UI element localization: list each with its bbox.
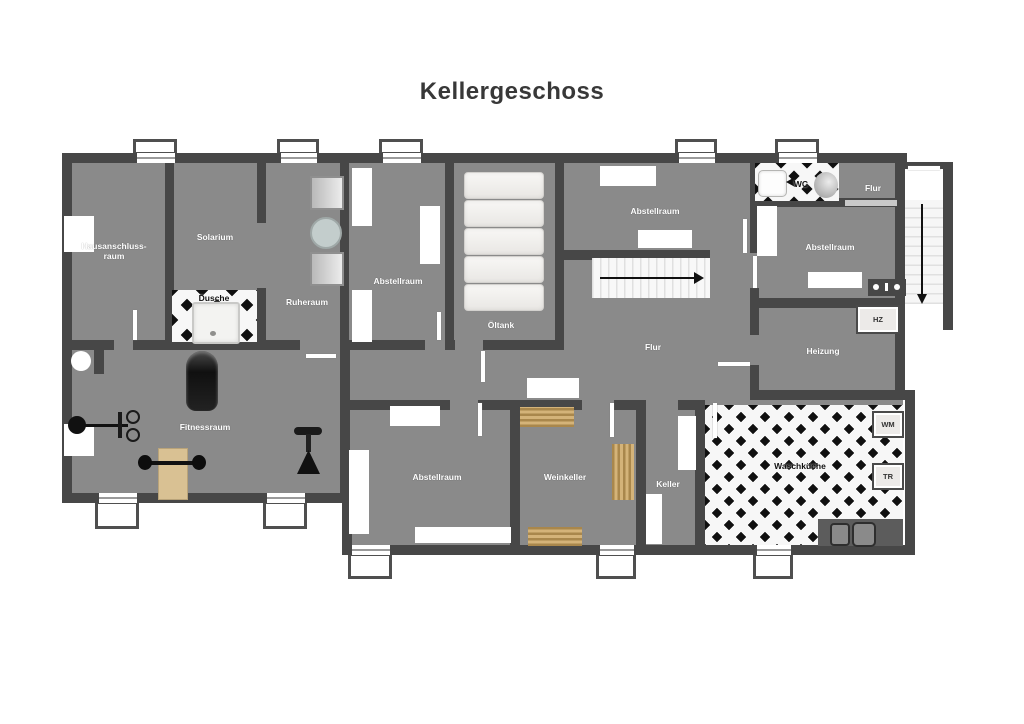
wall: [445, 159, 454, 340]
window: [352, 545, 390, 555]
niche: [420, 206, 440, 264]
wall: [257, 288, 266, 350]
door: [753, 256, 757, 288]
dryer-label: TR: [883, 472, 893, 481]
room-label-abstellraum-right: Abstellraum: [805, 242, 854, 252]
oil-tank: [464, 200, 544, 227]
niche: [757, 206, 777, 256]
lounger: [310, 176, 344, 210]
heating-unit-box: HZ: [856, 305, 900, 334]
lounger: [310, 252, 344, 286]
wine-rack: [612, 444, 634, 500]
shower-drain-icon: [210, 331, 216, 336]
wall: [555, 159, 564, 350]
oil-tank: [464, 284, 544, 311]
treadmill: [186, 351, 218, 411]
niche: [415, 527, 511, 543]
room-label-weinkeller: Weinkeller: [544, 472, 586, 482]
stair-down-arrow: [921, 204, 923, 296]
room-label-solarium: Solarium: [197, 232, 233, 242]
lightwell: [263, 501, 307, 529]
niche: [352, 290, 372, 342]
door: [437, 312, 441, 340]
oil-tank: [464, 172, 544, 199]
lightwell: [348, 553, 392, 579]
barbell-plate: [192, 455, 206, 470]
window: [600, 545, 634, 555]
window: [267, 493, 305, 503]
room-label-keller: Keller: [656, 479, 680, 489]
room-label-oeltank: Öltank: [488, 320, 514, 330]
niche: [646, 494, 662, 544]
washing-machine-box: WM: [872, 411, 904, 438]
lightwell: [596, 553, 636, 579]
wall: [750, 288, 759, 335]
washing-machine-label: WM: [881, 420, 894, 429]
window: [137, 153, 175, 163]
door: [478, 403, 482, 436]
meter-dot-icon: [894, 284, 900, 290]
wall: [943, 162, 953, 330]
door: [743, 219, 747, 253]
lightwell: [95, 501, 139, 529]
wall: [636, 400, 646, 545]
niche: [678, 416, 696, 470]
wall: [510, 400, 520, 545]
window: [281, 153, 317, 163]
page-title: Kellergeschoss: [420, 78, 604, 106]
exterior-stair-treads: [903, 200, 943, 304]
sink-basin: [830, 523, 850, 546]
room-label-abstellraum-topright: Abstellraum: [630, 206, 679, 216]
window: [383, 153, 421, 163]
heating-unit-label: HZ: [873, 315, 883, 324]
room-label-fitnessraum: Fitnessraum: [180, 422, 231, 432]
wall: [695, 400, 705, 545]
rowing-machine-frame: [118, 412, 122, 438]
niche: [390, 406, 440, 426]
door: [908, 166, 940, 170]
wall: [266, 340, 300, 350]
room-label-flur: Flur: [645, 342, 661, 352]
wine-rack: [528, 527, 582, 546]
stair-down-arrowhead-icon: [917, 294, 927, 304]
niche: [527, 378, 579, 398]
niche: [349, 450, 369, 534]
window: [679, 153, 715, 163]
niche: [600, 166, 656, 186]
wall: [445, 340, 455, 350]
sink-basin: [852, 522, 876, 547]
room-label-flur-top: Flur: [865, 183, 881, 193]
stair-up-arrow: [600, 277, 696, 279]
meter-bar-icon: [885, 283, 888, 291]
room-label-abstellraum-bottom: Abstellraum: [412, 472, 461, 482]
lightwell: [753, 553, 793, 579]
floor-plan: Kellergeschoss: [0, 0, 1024, 724]
toilet: [758, 170, 787, 197]
door: [133, 310, 137, 340]
rowing-machine-pedal: [126, 410, 140, 424]
room-label-hausanschlussraum: Hausanschluss-raum: [81, 241, 146, 261]
room-label-heizung: Heizung: [806, 346, 839, 356]
wall: [750, 390, 915, 400]
wall: [905, 390, 915, 555]
room-label-waschkueche: Waschküche: [774, 461, 826, 471]
meter-dot-icon: [873, 284, 879, 290]
door: [610, 403, 614, 437]
round-table: [310, 217, 342, 249]
shelf: [845, 200, 897, 206]
dryer-box: TR: [872, 463, 904, 490]
exercise-bike-stem: [306, 434, 311, 452]
wall: [895, 153, 905, 400]
barbell-plate: [138, 455, 152, 470]
room-label-dusche: Dusche: [199, 293, 230, 303]
wine-rack: [520, 407, 574, 427]
door: [481, 351, 485, 382]
stair-up-arrowhead-icon: [694, 272, 704, 284]
room-label-abstellraum-top: Abstellraum: [373, 276, 422, 286]
room-label-wc: WC: [794, 179, 808, 189]
weight-bench: [158, 448, 188, 500]
window: [99, 493, 137, 503]
niche: [638, 230, 692, 248]
wall: [94, 348, 104, 374]
niche: [352, 168, 372, 226]
sink: [814, 172, 838, 198]
oil-tank: [464, 256, 544, 283]
oil-tank: [464, 228, 544, 255]
door: [713, 403, 717, 438]
niche: [808, 272, 862, 288]
rowing-machine-pedal: [126, 428, 140, 442]
wall: [257, 159, 266, 223]
window: [757, 545, 791, 555]
wall: [62, 340, 114, 350]
wall: [483, 340, 564, 350]
room-label-ruheraum: Ruheraum: [286, 297, 328, 307]
door: [306, 354, 336, 358]
sump-circle: [71, 351, 91, 371]
window: [779, 153, 817, 163]
door: [718, 362, 750, 366]
shower-tray: [192, 302, 240, 344]
